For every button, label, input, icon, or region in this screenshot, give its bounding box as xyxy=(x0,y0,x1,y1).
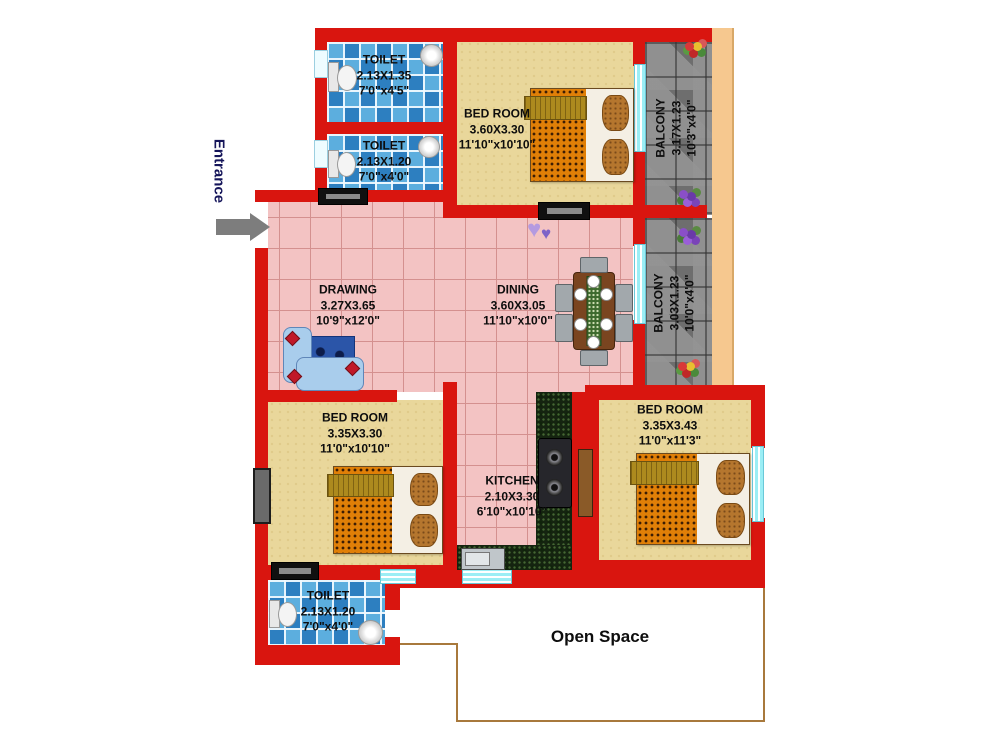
wall-bottom-long xyxy=(397,565,765,588)
room-dim-imperial: 11'10"x10'10" xyxy=(459,138,536,154)
window-kitchen-bottom xyxy=(462,569,512,584)
washbasin xyxy=(418,136,440,158)
wall-toilet3-bottom xyxy=(255,645,400,665)
bed-pillow xyxy=(716,503,745,537)
wall-bedroom2-top xyxy=(585,385,765,400)
bed-left-bedroom xyxy=(333,466,443,554)
heart-icon: ♥ xyxy=(541,224,551,244)
room-dim-imperial: 7'0"x4'0" xyxy=(357,170,412,186)
room-name: BED ROOM xyxy=(320,411,390,427)
stove-burner xyxy=(546,479,563,496)
plant-icon xyxy=(678,362,687,371)
floor-plan: ♥ ♥ Entrance TOILET 2.13X1.35 7'0"x4'5" … xyxy=(0,0,1000,750)
bed-pillow xyxy=(410,473,438,506)
window-bedroom-top-balcony xyxy=(634,64,646,152)
dining-chair xyxy=(615,284,633,312)
room-name: KITCHEN xyxy=(477,474,547,490)
open-space-label: Open Space xyxy=(551,627,649,647)
bed-throw xyxy=(630,461,699,485)
bed-top-bedroom xyxy=(530,88,634,182)
bed-pillow xyxy=(716,460,745,494)
room-name: TOILET xyxy=(301,589,356,605)
open-space-border-step-h xyxy=(400,643,458,645)
label-balcony-mid: BALCONY 3.03X1.23 10'0"x4'0" xyxy=(652,273,699,332)
entrance-label: Entrance xyxy=(211,139,228,203)
room-dim-metric: 2.13X1.20 xyxy=(357,154,412,170)
room-dim-imperial: 7'0"x4'5" xyxy=(357,84,412,100)
room-dim-metric: 2.13X1.20 xyxy=(301,604,356,620)
room-dim-imperial: 11'0"x11'3" xyxy=(637,434,703,450)
wall-bedroom1-top xyxy=(255,390,397,402)
open-space-border-bottom xyxy=(456,720,765,722)
room-dim-metric: 2.13X1.35 xyxy=(357,68,412,84)
plate xyxy=(574,318,587,331)
dining-chair xyxy=(580,257,608,273)
room-name: BALCONY xyxy=(652,273,668,332)
window-bedroom-left-wall xyxy=(253,468,271,524)
label-toilet-top: TOILET 2.13X1.35 7'0"x4'5" xyxy=(357,53,412,100)
door-sill-toilet-bottom xyxy=(271,562,319,580)
room-name: DINING xyxy=(483,283,553,299)
entrance-arrow-head xyxy=(250,213,270,241)
room-dim-metric: 2.10X3.30 xyxy=(477,489,547,505)
washbasin xyxy=(358,620,383,645)
room-dim-imperial: 7'0"x4'0" xyxy=(301,620,356,636)
bed-pillow xyxy=(410,514,438,547)
bedroom-right-door xyxy=(578,449,593,517)
kitchen-sink xyxy=(461,548,505,570)
room-dim-imperial: 6'10"x10'10" xyxy=(477,505,547,521)
room-dim-metric: 3.17X1.23 xyxy=(669,98,685,157)
room-dim-metric: 3.03X1.23 xyxy=(667,273,683,332)
heart-icon: ♥ xyxy=(527,216,541,244)
dining-chair xyxy=(580,350,608,366)
wall-left-outer xyxy=(255,248,268,665)
room-dim-metric: 3.60X3.30 xyxy=(459,122,536,138)
wall-toilet-divider xyxy=(315,122,455,134)
label-drawing: DRAWING 3.27X3.65 10'9"x12'0" xyxy=(316,283,380,330)
wall-balcony-top-b xyxy=(633,148,645,218)
toilet-bowl xyxy=(337,65,357,91)
plate xyxy=(587,336,600,349)
door-sill-toilet-mid xyxy=(318,188,368,205)
window-bedroom-right xyxy=(752,446,764,522)
window-dining-balcony xyxy=(634,244,646,324)
room-dim-imperial: 10'9"x12'0" xyxy=(316,314,380,330)
label-bedroom-right: BED ROOM 3.35X3.43 11'0"x11'3" xyxy=(637,403,703,450)
bed-throw xyxy=(327,474,394,497)
room-dim-metric: 3.60X3.05 xyxy=(483,298,553,314)
label-toilet-mid: TOILET 2.13X1.20 7'0"x4'0" xyxy=(357,139,412,186)
bed-pillow xyxy=(602,95,628,130)
washbasin xyxy=(420,44,443,67)
plate xyxy=(574,288,587,301)
window-toilet-top xyxy=(314,50,328,78)
room-dim-imperial: 10'0"x4'0" xyxy=(683,273,699,332)
label-bedroom-left: BED ROOM 3.35X3.30 11'0"x10'10" xyxy=(320,411,390,458)
room-name: BED ROOM xyxy=(637,403,703,419)
room-dim-imperial: 11'0"x10'10" xyxy=(320,442,390,458)
wall-dining-right-a xyxy=(633,218,645,246)
room-name: TOILET xyxy=(357,53,412,69)
room-name: BED ROOM xyxy=(459,107,536,123)
label-balcony-top: BALCONY 3.17X1.23 10'3"x4'0" xyxy=(654,98,701,157)
window-toilet-mid xyxy=(314,140,328,168)
plant-icon xyxy=(679,190,688,199)
open-space-border-right xyxy=(763,588,765,722)
outer-strip xyxy=(712,28,734,390)
dining-chair xyxy=(615,314,633,342)
wall-bedroom1-right xyxy=(443,382,457,575)
label-kitchen: KITCHEN 2.10X3.30 6'10"x10'10" xyxy=(477,474,547,521)
room-name: BALCONY xyxy=(654,98,670,157)
wall-bedroom2-right-a xyxy=(751,400,765,448)
plate xyxy=(600,318,613,331)
window-bedroom-left-bottom xyxy=(380,569,416,584)
plate xyxy=(587,275,600,288)
wall-balcony-top-a xyxy=(633,42,645,66)
room-dim-imperial: 11'10"x10'0" xyxy=(483,314,553,330)
stove-burner xyxy=(546,449,563,466)
room-dim-metric: 3.27X3.65 xyxy=(316,298,380,314)
dining-chair xyxy=(555,284,573,312)
toilet-bowl xyxy=(278,602,297,627)
plant-icon xyxy=(685,42,694,51)
plate xyxy=(600,288,613,301)
door-sill-bedroom-top xyxy=(538,202,590,220)
wall-top xyxy=(315,28,712,42)
label-toilet-bottom: TOILET 2.13X1.20 7'0"x4'0" xyxy=(301,589,356,636)
open-space-border-left xyxy=(456,643,458,722)
plant-icon xyxy=(679,228,688,237)
toilet-bowl xyxy=(337,152,356,177)
room-dim-metric: 3.35X3.30 xyxy=(320,426,390,442)
bed-right-bedroom xyxy=(636,453,750,545)
room-dim-metric: 3.35X3.43 xyxy=(637,418,703,434)
bed-pillow xyxy=(602,139,628,174)
label-bedroom-top: BED ROOM 3.60X3.30 11'10"x10'10" xyxy=(459,107,536,154)
entrance-arrow xyxy=(216,219,250,235)
room-dim-imperial: 10'3"x4'0" xyxy=(685,98,701,157)
wall-dining-right-b xyxy=(633,320,645,390)
room-name: DRAWING xyxy=(316,283,380,299)
label-dining: DINING 3.60X3.05 11'10"x10'0" xyxy=(483,283,553,330)
room-name: TOILET xyxy=(357,139,412,155)
dining-chair xyxy=(555,314,573,342)
